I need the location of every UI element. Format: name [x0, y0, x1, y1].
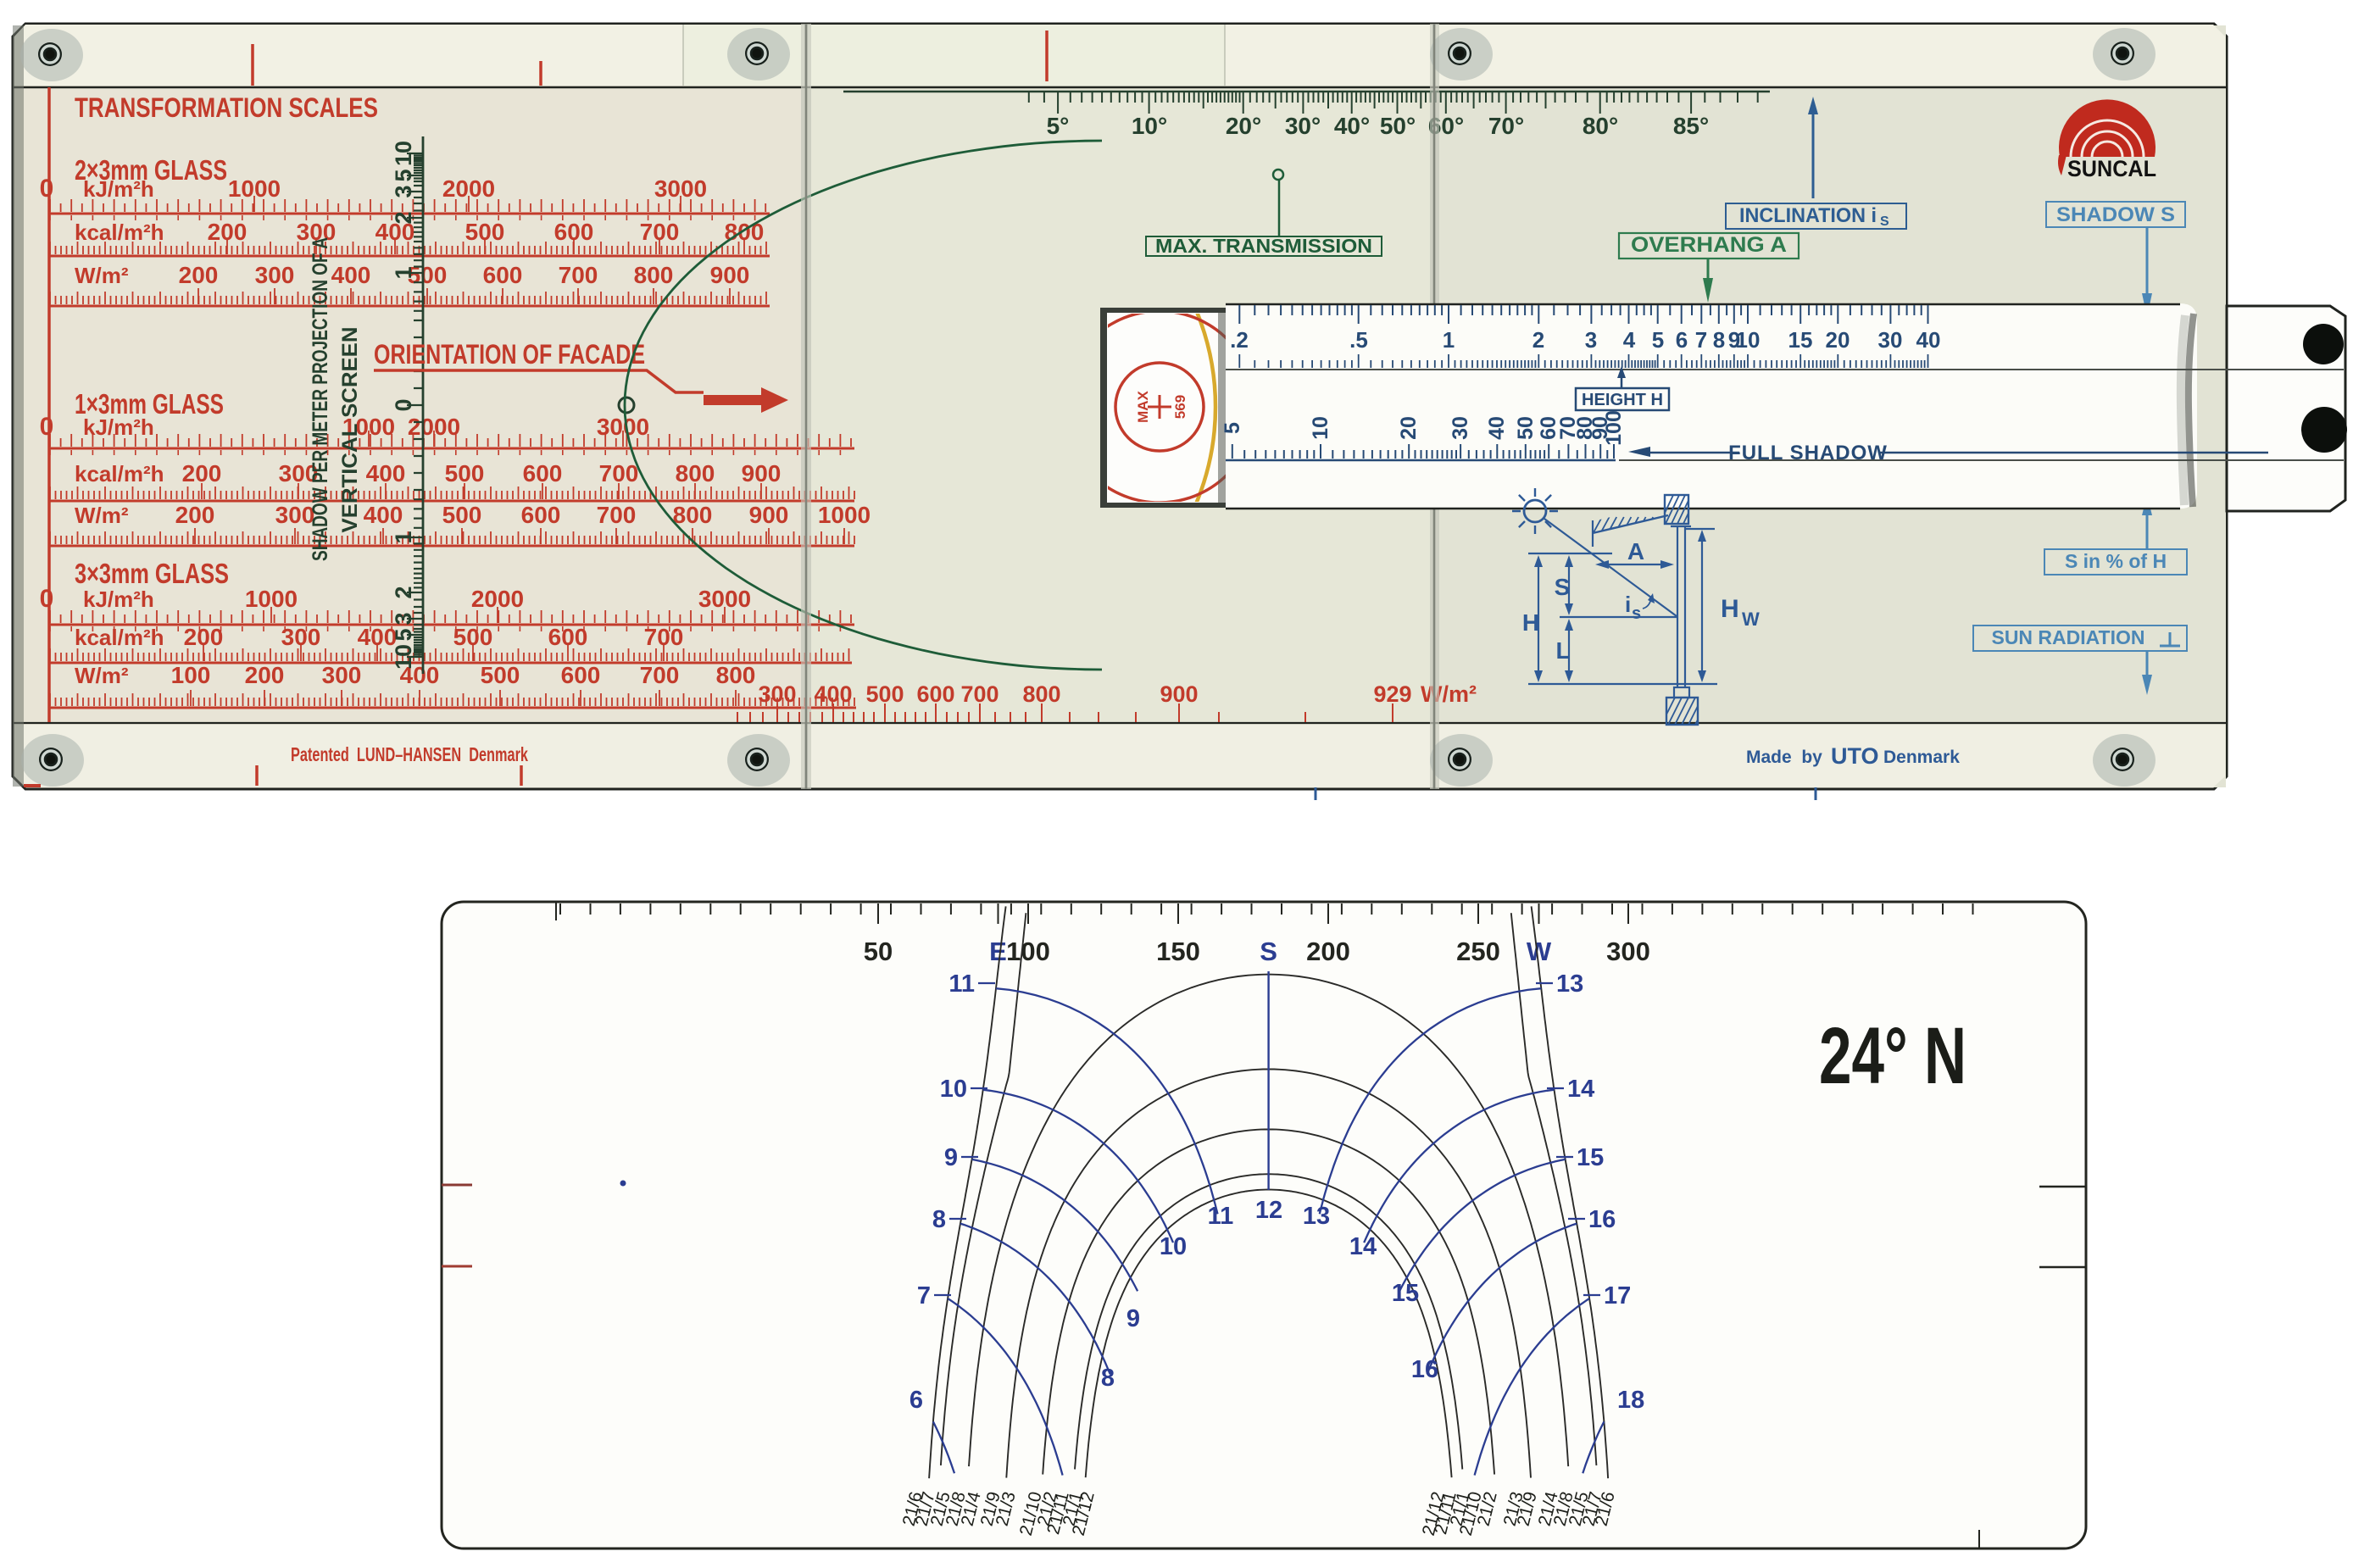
svg-text:UTO: UTO — [1831, 743, 1879, 769]
svg-text:8: 8 — [932, 1206, 946, 1233]
svg-text:500: 500 — [865, 681, 904, 707]
svg-text:0: 0 — [40, 175, 54, 203]
svg-text:30: 30 — [1878, 327, 1903, 353]
svg-text:s: s — [1632, 604, 1641, 623]
svg-text:300: 300 — [1606, 937, 1650, 966]
svg-text:10: 10 — [1160, 1233, 1187, 1260]
svg-text:15: 15 — [1392, 1280, 1419, 1307]
svg-text:17: 17 — [1604, 1282, 1631, 1309]
svg-text:20: 20 — [1826, 327, 1850, 353]
svg-text:600: 600 — [561, 662, 601, 688]
svg-text:SHADOW PER METER PROJECTION OF: SHADOW PER METER PROJECTION OF A — [309, 237, 332, 561]
svg-text:16: 16 — [1411, 1356, 1438, 1383]
svg-text:200: 200 — [179, 262, 219, 288]
svg-text:700: 700 — [597, 502, 637, 528]
svg-text:200: 200 — [175, 502, 215, 528]
svg-text:W: W — [1527, 937, 1552, 966]
svg-text:10: 10 — [1736, 327, 1761, 353]
svg-text:30: 30 — [1449, 416, 1472, 440]
svg-text:15: 15 — [1788, 327, 1813, 353]
svg-text:SUNCAL: SUNCAL — [2067, 156, 2156, 181]
svg-text:kJ/m²h: kJ/m²h — [83, 587, 154, 612]
svg-text:0: 0 — [40, 413, 54, 441]
svg-text:70°: 70° — [1488, 113, 1524, 139]
svg-text:24° N: 24° N — [1819, 1011, 1966, 1101]
svg-text:S: S — [1260, 937, 1277, 966]
svg-text:700: 700 — [559, 262, 598, 288]
svg-text:W/m²: W/m² — [75, 263, 129, 288]
svg-text:400: 400 — [366, 460, 406, 487]
svg-text:900: 900 — [1160, 681, 1198, 707]
svg-text:500: 500 — [481, 662, 520, 688]
svg-text:200: 200 — [245, 662, 285, 688]
svg-text:1: 1 — [391, 266, 416, 279]
svg-text:6: 6 — [909, 1387, 923, 1414]
svg-text:400: 400 — [364, 502, 403, 528]
svg-text:kcal/m²h: kcal/m²h — [75, 461, 164, 487]
svg-text:100: 100 — [1602, 410, 1626, 446]
svg-text:18: 18 — [1617, 1387, 1644, 1414]
svg-text:FULL SHADOW: FULL SHADOW — [1728, 442, 1888, 464]
svg-text:150: 150 — [1156, 937, 1200, 966]
svg-text:i: i — [1625, 592, 1631, 617]
svg-text:4: 4 — [1623, 327, 1636, 353]
svg-text:600: 600 — [521, 502, 561, 528]
svg-text:300: 300 — [255, 262, 295, 288]
svg-text:INCLINATION i: INCLINATION i — [1739, 204, 1877, 227]
svg-text:900: 900 — [742, 460, 782, 487]
svg-text:569: 569 — [1172, 395, 1188, 419]
svg-text:Patented LUND–HANSEN Denmark: Patented LUND–HANSEN Denmark — [291, 743, 528, 765]
svg-text:A: A — [1627, 538, 1644, 564]
svg-text:E: E — [989, 937, 1007, 966]
svg-text:700: 700 — [599, 460, 639, 487]
svg-text:800: 800 — [676, 460, 715, 487]
svg-text:40°: 40° — [1334, 113, 1370, 139]
svg-text:250: 250 — [1456, 937, 1500, 966]
svg-text:H: H — [1522, 609, 1539, 636]
svg-text:200: 200 — [182, 460, 222, 487]
svg-text:50: 50 — [1514, 416, 1538, 440]
svg-text:2: 2 — [391, 211, 416, 224]
svg-text:5: 5 — [391, 169, 416, 181]
svg-text:L: L — [1555, 637, 1570, 664]
svg-text:S in % of H: S in % of H — [2065, 550, 2167, 572]
svg-text:5°: 5° — [1047, 113, 1070, 139]
svg-text:6: 6 — [1676, 327, 1688, 353]
svg-text:VERTICAL SCREEN: VERTICAL SCREEN — [338, 327, 362, 533]
svg-text:10: 10 — [391, 141, 416, 166]
svg-text:20: 20 — [1397, 416, 1421, 440]
svg-text:Denmark: Denmark — [1883, 748, 1960, 767]
svg-text:800: 800 — [673, 502, 713, 528]
svg-text:600: 600 — [483, 262, 523, 288]
svg-text:.5: .5 — [1349, 327, 1368, 353]
svg-text:200: 200 — [1306, 937, 1350, 966]
svg-text:3: 3 — [1585, 327, 1597, 353]
svg-text:500: 500 — [445, 460, 485, 487]
svg-text:700: 700 — [640, 662, 680, 688]
svg-text:3×3mm GLASS: 3×3mm GLASS — [75, 558, 229, 589]
svg-text:85°: 85° — [1673, 113, 1709, 139]
svg-text:10: 10 — [940, 1076, 967, 1103]
svg-text:H: H — [1721, 595, 1739, 623]
svg-text:10°: 10° — [1132, 113, 1167, 139]
svg-text:20°: 20° — [1226, 113, 1261, 139]
svg-text:8: 8 — [1101, 1365, 1115, 1392]
svg-text:0: 0 — [391, 398, 416, 411]
svg-text:TRANSFORMATION SCALES: TRANSFORMATION SCALES — [75, 92, 378, 123]
svg-text:9: 9 — [1126, 1305, 1140, 1332]
svg-text:300: 300 — [322, 662, 362, 688]
svg-text:16: 16 — [1588, 1206, 1616, 1233]
svg-text:3: 3 — [391, 185, 416, 197]
svg-text:W: W — [1742, 609, 1760, 630]
svg-text:W/m²: W/m² — [75, 503, 129, 528]
svg-text:1000: 1000 — [818, 502, 871, 528]
svg-text:15: 15 — [1577, 1144, 1604, 1171]
svg-text:13: 13 — [1556, 970, 1583, 998]
svg-text:30°: 30° — [1285, 113, 1321, 139]
svg-text:8: 8 — [1713, 327, 1725, 353]
svg-text:kcal/m²h: kcal/m²h — [75, 625, 164, 650]
svg-text:2: 2 — [391, 586, 416, 598]
svg-text:OVERHANG A: OVERHANG A — [1631, 233, 1787, 257]
svg-text:600: 600 — [916, 681, 954, 707]
svg-text:900: 900 — [710, 262, 750, 288]
svg-text:9: 9 — [944, 1144, 958, 1171]
svg-text:2: 2 — [1533, 327, 1544, 353]
svg-text:80°: 80° — [1583, 113, 1618, 139]
svg-text:kJ/m²h: kJ/m²h — [83, 176, 154, 202]
svg-text:W/m²: W/m² — [1421, 681, 1477, 707]
svg-text:7: 7 — [1695, 327, 1707, 353]
svg-text:0: 0 — [40, 585, 54, 613]
svg-text:14: 14 — [1349, 1233, 1377, 1260]
svg-text:5: 5 — [1652, 327, 1664, 353]
svg-text:100: 100 — [171, 662, 211, 688]
svg-text:929: 929 — [1373, 681, 1411, 707]
svg-text:kcal/m²h: kcal/m²h — [75, 220, 164, 245]
svg-text:kJ/m²h: kJ/m²h — [83, 414, 154, 440]
svg-text:MAX: MAX — [1135, 390, 1151, 422]
svg-text:Made by: Made by — [1746, 748, 1833, 767]
svg-text:400: 400 — [331, 262, 371, 288]
svg-text:MAX. TRANSMISSION: MAX. TRANSMISSION — [1155, 235, 1372, 257]
svg-text:1: 1 — [1443, 327, 1455, 353]
svg-text:50: 50 — [864, 937, 893, 966]
svg-text:5: 5 — [391, 628, 416, 641]
svg-text:700: 700 — [960, 681, 998, 707]
svg-text:12: 12 — [1255, 1197, 1282, 1224]
svg-text:600: 600 — [523, 460, 563, 487]
svg-text:11: 11 — [1208, 1203, 1234, 1230]
svg-text:3: 3 — [391, 612, 416, 625]
svg-text:.2: .2 — [1230, 327, 1249, 353]
svg-text:HEIGHT H: HEIGHT H — [1582, 391, 1663, 409]
svg-text:7: 7 — [917, 1282, 931, 1309]
svg-text:11: 11 — [948, 970, 975, 998]
svg-text:1: 1 — [391, 531, 416, 543]
svg-text:10: 10 — [391, 644, 416, 670]
svg-text:800: 800 — [634, 262, 674, 288]
svg-text:SUN RADIATION: SUN RADIATION — [1991, 626, 2144, 648]
svg-text:S: S — [1555, 574, 1571, 600]
svg-text:10: 10 — [1309, 416, 1332, 440]
svg-text:40: 40 — [1916, 327, 1941, 353]
svg-text:5: 5 — [1221, 422, 1244, 434]
svg-text:300: 300 — [758, 681, 796, 707]
svg-text:14: 14 — [1567, 1076, 1594, 1103]
svg-text:500: 500 — [442, 502, 482, 528]
svg-text:800: 800 — [1022, 681, 1060, 707]
svg-text:900: 900 — [749, 502, 789, 528]
svg-text:50°: 50° — [1380, 113, 1416, 139]
svg-text:40: 40 — [1485, 416, 1509, 440]
svg-text:100: 100 — [1006, 937, 1050, 966]
svg-text:W/m²: W/m² — [75, 663, 129, 688]
svg-text:S: S — [1880, 214, 1889, 229]
svg-text:800: 800 — [716, 662, 756, 688]
svg-text:13: 13 — [1303, 1203, 1330, 1230]
svg-text:400: 400 — [814, 681, 852, 707]
svg-text:ORIENTATION OF FACADE: ORIENTATION OF FACADE — [374, 339, 645, 370]
svg-text:SHADOW S: SHADOW S — [2056, 203, 2175, 226]
